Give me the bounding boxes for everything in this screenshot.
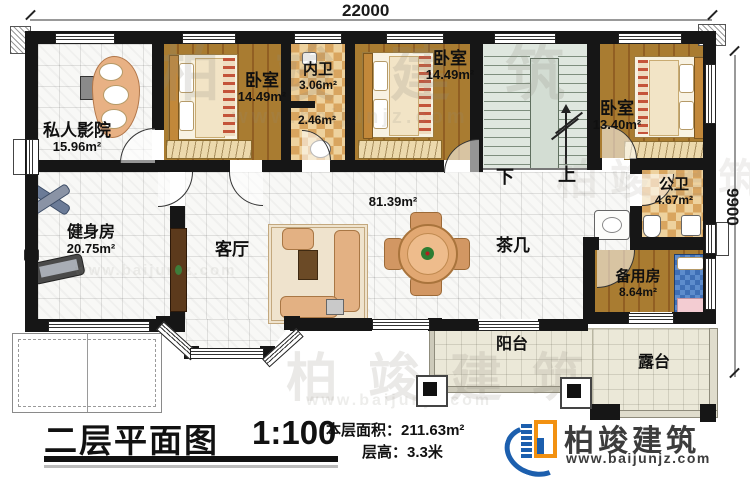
title-underline — [44, 456, 338, 462]
window — [628, 313, 674, 324]
column-core — [567, 384, 581, 398]
wall — [428, 318, 442, 331]
room-label-cinema: 私人影院 15.96m² — [18, 121, 136, 155]
dresser-bedroom1 — [166, 140, 252, 159]
stairs-arrowhead — [561, 104, 571, 113]
room-label-spare: 备用房 8.64m² — [602, 269, 674, 299]
window — [294, 33, 342, 44]
room-name: 卧室 — [245, 71, 279, 90]
room-name: 内卫 — [303, 62, 333, 79]
wall — [291, 101, 315, 108]
room-name: 茶几 — [496, 236, 530, 255]
room-name: 备用房 — [615, 269, 660, 286]
room-name: 卧室 — [433, 49, 467, 68]
balcony-railing — [446, 386, 566, 393]
logo-building-detail — [537, 438, 544, 454]
stairs-core — [530, 58, 559, 170]
wall — [288, 160, 302, 172]
round-table — [398, 224, 458, 284]
terrace-corner-block — [700, 404, 716, 422]
room-label-inner-bath: 内卫 3.06m² — [288, 62, 348, 92]
wall — [152, 31, 164, 130]
window — [372, 319, 430, 330]
floor-area-label: 本层面积： — [326, 422, 401, 439]
sheet-title: 二层平面图 — [44, 414, 219, 462]
wall — [25, 31, 38, 332]
floor-height-row: 层高：3.3米 — [362, 441, 443, 462]
wall — [170, 206, 185, 230]
room-label-balcony: 阳台 — [482, 336, 542, 354]
wall — [672, 312, 716, 324]
floor-area-value: 211.63m² — [401, 422, 464, 439]
wall — [262, 160, 288, 172]
label-tea-table: 茶几 — [484, 236, 542, 255]
window — [48, 321, 150, 332]
window — [705, 64, 716, 124]
window — [705, 258, 716, 310]
logo-building-blue — [521, 424, 532, 458]
sheet-scale: 1:100 — [252, 414, 336, 452]
column-core — [423, 382, 437, 396]
room-area: 8.64m² — [619, 286, 657, 299]
room-area: 13.40m² — [593, 118, 641, 133]
room-label-bedroom1: 卧室 14.49m² — [230, 71, 294, 105]
room-area: 14.49m² — [238, 90, 286, 105]
room-name: 阳台 — [496, 336, 528, 354]
floor-height-value: 3.3米 — [407, 444, 443, 461]
bay-corner — [284, 316, 300, 330]
room-label-public-bath: 公卫 4.67m² — [646, 177, 702, 207]
roof-divider-line — [87, 334, 88, 412]
wall — [25, 31, 716, 44]
stairs-flight-left — [484, 56, 530, 168]
room-label-living: 客厅 — [204, 240, 260, 259]
room-area: 20.75m² — [67, 242, 115, 257]
room-name: 卧室 — [600, 99, 634, 118]
room-label-bedroom2: 卧室 14.49m² — [418, 49, 482, 83]
wall — [635, 237, 716, 250]
room-area: 81.39m² — [369, 195, 417, 210]
brand-website: www.baijunjz.com — [566, 450, 711, 466]
coffee-table — [298, 250, 318, 280]
balcony-column — [416, 375, 448, 407]
room-name: 露台 — [638, 354, 670, 372]
room-area: 15.96m² — [53, 140, 101, 155]
armchair — [282, 228, 314, 250]
stairs-direction: 上 — [558, 165, 576, 185]
bed-bedroom1 — [168, 54, 238, 140]
room-label-gym: 健身房 20.75m² — [52, 224, 130, 256]
floor-plan-canvas: 22000 9900 柏竣建筑 www.baijunjz.com 柏竣建筑 柏竣… — [0, 0, 750, 482]
tv-cabinet — [170, 228, 187, 312]
watermark-url: www.baijunjz.com — [306, 392, 492, 410]
room-area: 3.06m² — [299, 79, 337, 92]
window — [182, 33, 236, 44]
wall — [442, 319, 478, 331]
wall — [590, 158, 602, 170]
stairs-arrow — [565, 112, 567, 164]
sink — [681, 215, 701, 236]
room-area: 2.46m² — [298, 114, 336, 127]
room-label-inner-bath-2: 2.46m² — [288, 114, 346, 127]
roof-outline — [12, 333, 162, 413]
wall — [352, 160, 444, 172]
stairs-direction: 下 — [496, 167, 514, 187]
window — [494, 33, 556, 44]
wall — [583, 237, 595, 322]
sliding-door — [478, 321, 540, 331]
room-name: 公卫 — [659, 177, 689, 194]
window-sill — [716, 222, 729, 256]
wall — [583, 312, 630, 324]
bay-window — [190, 348, 264, 359]
stairs-up-label: 上 — [554, 165, 580, 185]
stairs-down-label: 下 — [492, 167, 518, 187]
room-label-bedroom3: 卧室 13.40m² — [584, 99, 650, 133]
room-name: 健身房 — [67, 224, 115, 242]
room-name: 客厅 — [215, 240, 249, 259]
brand-logo-icon — [504, 418, 560, 472]
window — [386, 33, 444, 44]
dimension-top-label: 22000 — [342, 1, 389, 21]
title-underline-2 — [44, 465, 338, 468]
wall — [290, 318, 372, 331]
dresser-bedroom2 — [358, 140, 442, 159]
living-area-value: 81.39m² — [362, 195, 424, 210]
wall — [152, 160, 230, 172]
wall — [630, 158, 642, 174]
wall — [538, 319, 588, 331]
room-area: 14.49m² — [426, 68, 474, 83]
dimension-tick — [707, 10, 718, 21]
toilet — [643, 215, 661, 238]
balcony-column — [560, 377, 592, 409]
floor-area-row: 本层面积：211.63m² — [326, 419, 464, 440]
wall — [636, 158, 716, 170]
room-name: 私人影院 — [43, 121, 111, 140]
window — [705, 224, 716, 254]
floor-height-label: 层高： — [362, 444, 407, 461]
window — [55, 33, 115, 44]
side-table — [326, 299, 344, 315]
window — [618, 33, 682, 44]
room-label-terrace: 露台 — [624, 354, 684, 372]
vanity-basin — [594, 210, 630, 240]
room-area: 4.67m² — [655, 194, 693, 207]
dimension-right-label: 9900 — [722, 188, 742, 226]
